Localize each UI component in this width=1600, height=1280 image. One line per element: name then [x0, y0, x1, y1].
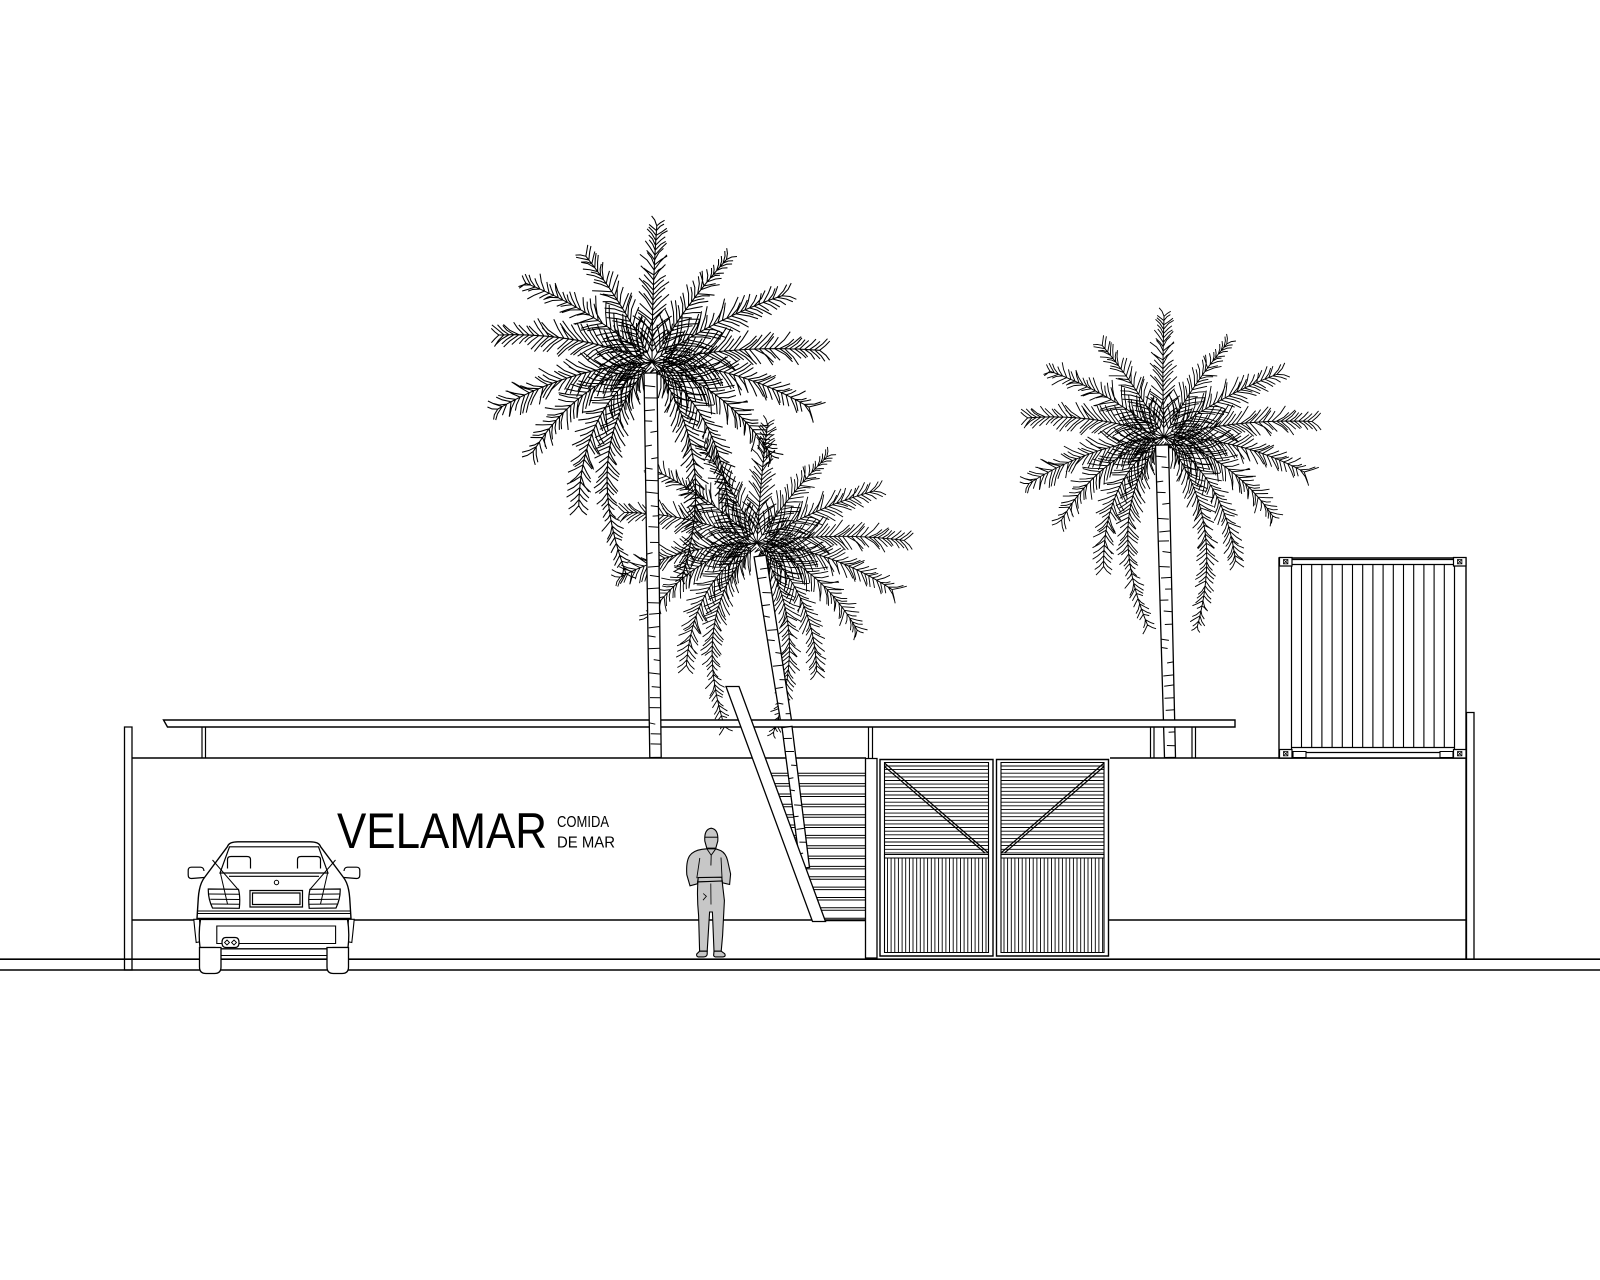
svg-text:VELAMAR: VELAMAR — [337, 803, 547, 859]
svg-text:COMIDA: COMIDA — [557, 814, 609, 831]
svg-text:DE MAR: DE MAR — [557, 835, 615, 852]
